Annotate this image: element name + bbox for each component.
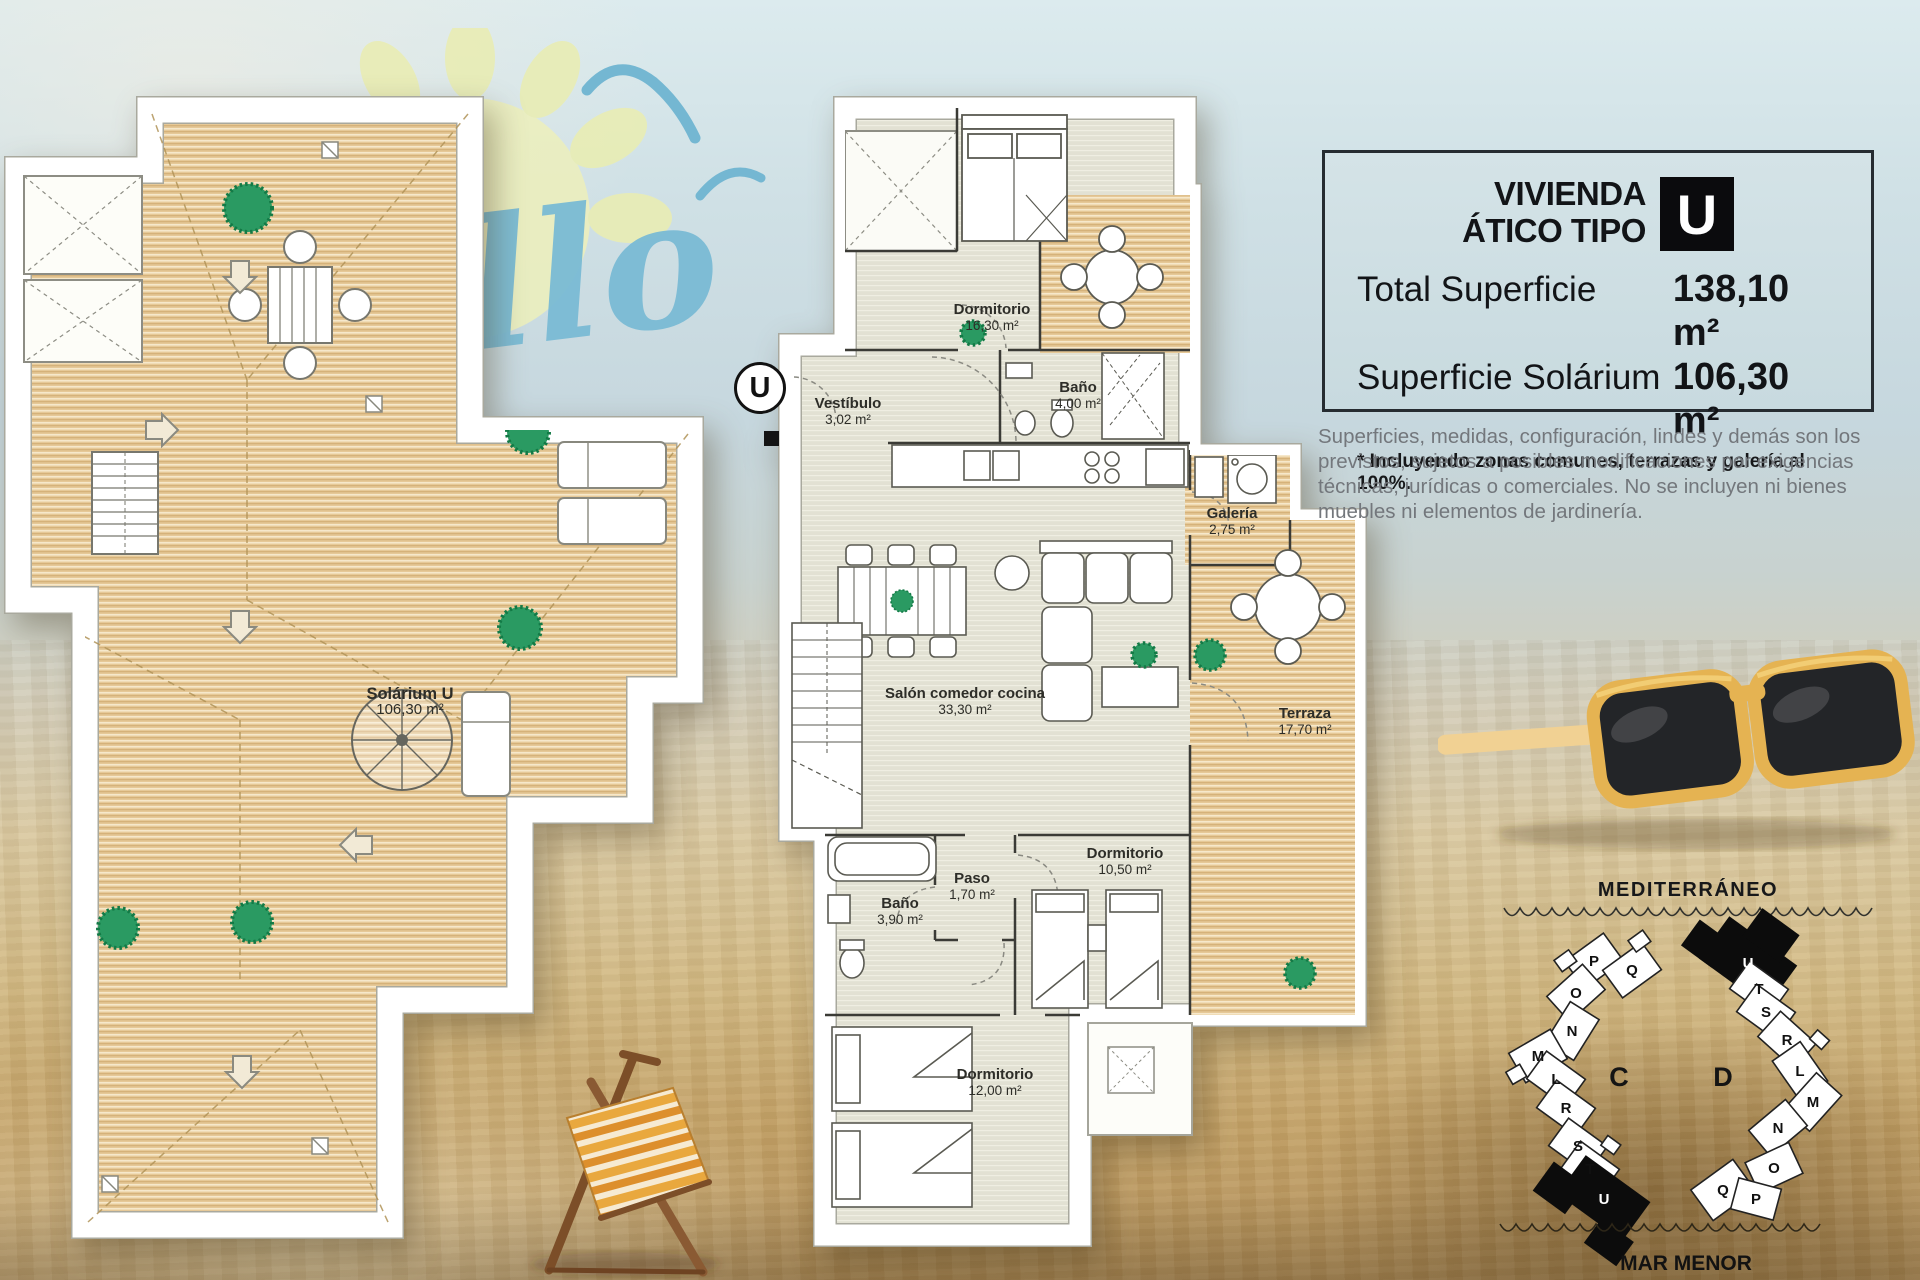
- unit-title-line1: VIVIENDA: [1462, 175, 1646, 212]
- unit-letter: T: [1585, 1161, 1594, 1178]
- kitchen-counter: [892, 445, 1188, 487]
- room-label-bano-2: Baño3,90 m²: [877, 896, 923, 927]
- unit-letter: P: [1589, 953, 1599, 970]
- unit-letter: R: [1782, 1032, 1793, 1049]
- brochure-page: llo: [0, 0, 1920, 1280]
- entry-mat: [764, 431, 779, 446]
- unit-letter: N: [1567, 1023, 1578, 1040]
- unit-letter: L: [1795, 1063, 1804, 1080]
- unit-letter: S: [1573, 1138, 1583, 1155]
- room-label-dormitorio-3: Dormitorio12,00 m²: [957, 1067, 1034, 1098]
- unit-letter: P: [1751, 1191, 1761, 1208]
- shoreline-top: [1504, 908, 1872, 916]
- shoreline-bottom: [1500, 1224, 1820, 1231]
- unit-letter: M: [1532, 1048, 1545, 1065]
- building-block-d: [1681, 882, 1842, 1220]
- double-bed: [962, 115, 1067, 241]
- room-label-solarium: Solárium U 106,30 m²: [366, 686, 453, 717]
- room-label-bano-1: Baño4,00 m²: [1055, 380, 1101, 411]
- unit-letter: L: [1551, 1071, 1560, 1088]
- unit-title-line2: ÁTICO TIPO: [1462, 212, 1646, 249]
- room-label-galeria: Galería2,75 m²: [1207, 506, 1258, 537]
- room-label-vestibulo: Vestíbulo3,02 m²: [815, 396, 882, 427]
- washer-icon: [1195, 455, 1276, 503]
- site-location-map: MEDITERRÁNEO P Q O N M L R S T: [1486, 850, 1901, 1280]
- deck-chair-photo: [505, 1022, 740, 1280]
- unit-letter: T: [1754, 981, 1763, 998]
- unit-letter: M: [1807, 1094, 1820, 1111]
- unit-type-letter-badge: U: [1660, 177, 1734, 251]
- unit-type-marker: U: [734, 362, 786, 414]
- unit-letter: O: [1570, 985, 1582, 1002]
- sunglasses-photo: [1438, 642, 1920, 857]
- unit-letter: Q: [1717, 1182, 1729, 1199]
- solarium-area-label: Superficie Solárium: [1357, 356, 1673, 400]
- stairs: [792, 623, 862, 828]
- total-area-row: Total Superficie 138,10 m²: [1357, 267, 1845, 355]
- block-d-label: D: [1713, 1062, 1733, 1092]
- unit-info-box: VIVIENDA ÁTICO TIPO U Total Superficie 1…: [1322, 150, 1874, 412]
- unit-title: VIVIENDA ÁTICO TIPO U: [1351, 175, 1845, 251]
- unit-letter: Q: [1626, 962, 1638, 979]
- deck-chair-canvas: [567, 1088, 709, 1218]
- building-block-c: [1498, 927, 1668, 1266]
- room-label-dormitorio-1: Dormitorio16,30 m²: [954, 302, 1031, 333]
- wardrobe: [845, 131, 957, 251]
- apartment-floor-plan: [740, 95, 1370, 1255]
- legal-disclaimer: Superficies, medidas, configuración, lin…: [1318, 424, 1918, 524]
- stairs: [92, 452, 158, 554]
- unit-letter: R: [1561, 1100, 1572, 1117]
- stair-core: [1088, 1023, 1192, 1135]
- skylight-room: [24, 176, 142, 362]
- block-c-label: C: [1609, 1062, 1629, 1092]
- unit-letter: N: [1773, 1120, 1784, 1137]
- total-area-value: 138,10 m²: [1673, 267, 1845, 355]
- unit-letter-highlighted: U: [1743, 955, 1754, 972]
- unit-letter: S: [1761, 1004, 1771, 1021]
- sea-label-mar-menor: MAR MENOR: [1620, 1252, 1752, 1275]
- total-area-label: Total Superficie: [1357, 268, 1673, 312]
- unit-letter-highlighted: U: [1599, 1191, 1610, 1208]
- sea-label-mediterraneo: MEDITERRÁNEO: [1598, 878, 1778, 901]
- room-label-terraza: Terraza17,70 m²: [1278, 706, 1331, 737]
- unit-letter: O: [1768, 1160, 1780, 1177]
- room-label-salon: Salón comedor cocina33,30 m²: [885, 686, 1045, 717]
- sunglasses-temple-arm: [1438, 723, 1607, 755]
- room-label-paso: Paso1,70 m²: [949, 871, 995, 902]
- room-label-dormitorio-2: Dormitorio10,50 m²: [1087, 846, 1164, 877]
